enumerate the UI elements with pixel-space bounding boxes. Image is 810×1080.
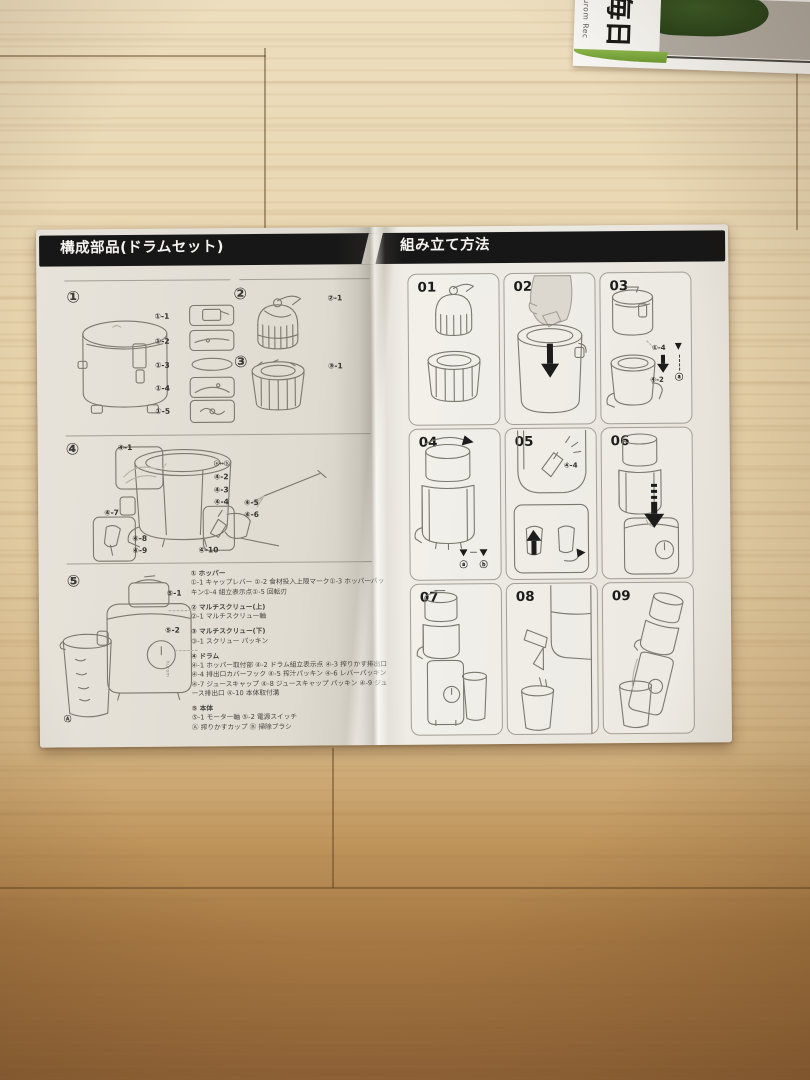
- part-label: ④-5: [244, 499, 259, 507]
- part-label: ⑤-2: [165, 627, 180, 635]
- divider-rule: [239, 278, 369, 280]
- parts-group-detail: ③-1 スクリュー パッキン: [191, 635, 391, 646]
- step-03-callout-top: ①-4: [652, 345, 666, 352]
- step-card-02: 02: [503, 272, 596, 425]
- rotary-blade-thumbnail: [189, 399, 235, 423]
- step-02-illustration: [504, 273, 595, 424]
- parts-group-4: ④ ドラム ④-1 ホッパー取付部 ④-2 ドラム組立表示点 ④-3 搾りかす排…: [191, 651, 391, 699]
- fold-notch: [361, 233, 382, 264]
- hopper-packing-thumbnail: [189, 356, 235, 372]
- part-label: ④-2: [214, 473, 229, 481]
- cap-lever-thumbnail: [189, 304, 235, 326]
- step-04-illustration: [410, 429, 501, 580]
- part-label: ④-7: [104, 509, 119, 517]
- part-label: ④-1: [118, 444, 133, 452]
- part-label: ①-2: [155, 338, 170, 346]
- parts-group-1: ① ホッパー ①-1 キャップレバー ①-2 食材投入上限マーク①-3 ホッパー…: [191, 568, 391, 597]
- step-card-09: 09: [602, 582, 695, 735]
- floor-plank-seam: [0, 887, 810, 889]
- recipe-booklet-title: 毎日: [600, 0, 641, 48]
- part-label: ④-8: [132, 535, 147, 543]
- recipe-cover-photo: [659, 0, 810, 60]
- part-label: ③-1: [328, 362, 343, 370]
- dashed-arrow-icon: [679, 355, 680, 371]
- parts-group-detail: ②-1 マルチスクリュー軸: [191, 611, 391, 622]
- step-01-illustration: [408, 274, 499, 425]
- divider-rule: [66, 433, 371, 436]
- step-08-illustration: [507, 583, 598, 734]
- auger-upper-illustration: [244, 290, 311, 355]
- step-05-callout: ④-4: [564, 462, 578, 469]
- part-label: ①-3: [155, 362, 170, 370]
- assembly-point-thumbnail: [189, 376, 235, 398]
- parts-group-2: ② マルチスクリュー(上) ②-1 マルチスクリュー軸: [191, 602, 391, 622]
- divider-rule: [64, 279, 230, 281]
- parts-list: ① ホッパー ①-1 キャップレバー ①-2 食材投入上限マーク①-3 ホッパー…: [191, 568, 392, 738]
- part-label: ④-9: [132, 547, 147, 555]
- floor-plank-seam: [264, 48, 266, 230]
- part-label: ①-1: [155, 313, 170, 321]
- cup-label: Ⓐ: [64, 715, 72, 723]
- parts-group-5: ⑤ 本体 ⑤-1 モーター軸 ⑤-2 電源スイッチ Ⓐ 搾りかすカップ Ⓑ 掃除…: [192, 703, 392, 732]
- step-card-03: 03 ①-4 ④-2 ▼ ⓐ: [599, 272, 692, 425]
- step-card-05: 05 ④-4: [505, 427, 598, 580]
- green-accent-stripe: [572, 49, 668, 63]
- step-05-illustration: [506, 428, 597, 579]
- parts-group-3: ③ マルチスクリュー(下) ③-1 スクリュー パッキン: [191, 626, 391, 646]
- floor-plank-seam: [0, 55, 266, 57]
- left-page-title: 構成部品(ドラムセット): [60, 235, 224, 257]
- part-label: ④-4: [214, 498, 229, 506]
- step-03-callout-bottom: ④-2: [650, 377, 664, 384]
- auger-lower-illustration: [245, 358, 311, 417]
- fill-limit-mark-thumbnail: [189, 329, 235, 351]
- alignment-marks-label: ⓐ↔ⓑ: [214, 459, 230, 467]
- right-page-title: 組み立て方法: [400, 233, 490, 255]
- floor-plank-seam: [796, 60, 798, 230]
- parts-group-detail2: Ⓐ 搾りかすカップ Ⓑ 掃除ブラシ: [192, 721, 392, 732]
- step-09-illustration: [603, 583, 694, 734]
- step-card-06: 06: [601, 427, 694, 580]
- circle-a-mark: ⓐ: [460, 561, 468, 569]
- parts-group-detail: ①-1 キャップレバー ①-2 食材投入上限マーク①-3 ホッパーパッキン①-4…: [191, 577, 391, 597]
- step-07-illustration: [411, 584, 502, 735]
- step-card-07: 07: [410, 583, 503, 736]
- part-label: ①-5: [155, 408, 170, 416]
- step-06-illustration: [602, 428, 693, 579]
- triangle-mark-icon: ▼: [675, 343, 682, 352]
- manual-open-spread: 構成部品(ドラムセット) 組み立て方法 ① ①-1 ①-2 ①-3 ①-4 ①-…: [36, 224, 732, 747]
- floor-plank-seam: [332, 748, 334, 888]
- part-label: ①-4: [155, 385, 170, 393]
- section-1-number: ①: [66, 289, 80, 305]
- recipe-booklet-subtitle: Hurom Rec: [581, 0, 592, 39]
- part-label: ④-10: [198, 546, 218, 554]
- circle-b-mark: ⓑ: [480, 561, 488, 569]
- parts-group-detail: ④-1 ホッパー取付部 ④-2 ドラム組立表示点 ④-3 搾りかす排出口 ④-4…: [191, 660, 391, 699]
- pulp-cup-illustration: [55, 629, 122, 724]
- circle-a-mark: ⓐ: [675, 374, 683, 382]
- part-label: ②-1: [327, 294, 342, 302]
- step-card-01: 01: [407, 273, 500, 426]
- part-label: ⑤-1: [167, 590, 182, 598]
- step-card-08: 08: [506, 582, 599, 735]
- brand-logo: hurom: [164, 661, 169, 678]
- part-label: ④-3: [214, 486, 229, 494]
- step-card-04: 04 ⓐ ⓑ: [409, 428, 502, 581]
- part-label: ④-6: [244, 511, 259, 519]
- recipe-booklet-cover: Hurom Rec 毎日: [573, 0, 810, 74]
- section-5-number: ⑤: [67, 573, 81, 589]
- vegetable-photo-blob: [659, 0, 769, 39]
- photo-of-manual-on-floor: { "scene": { "floor": {"top_color":"#edd…: [0, 0, 810, 1080]
